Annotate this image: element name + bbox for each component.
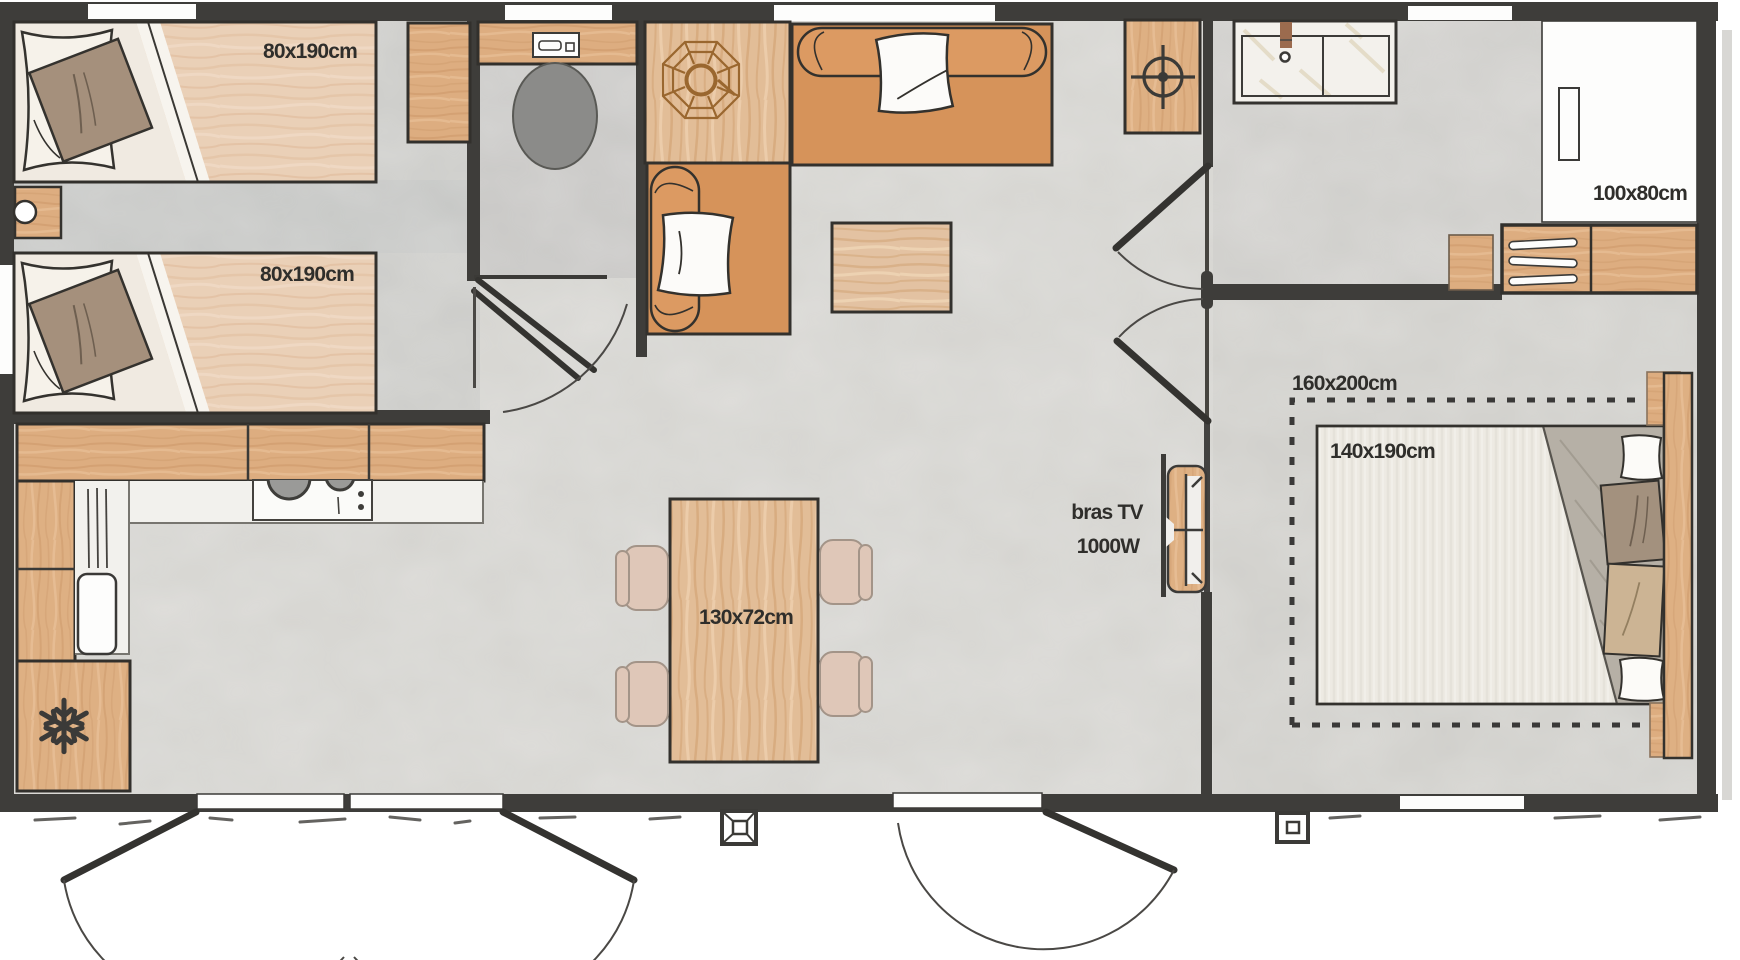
svg-text:80x190cm: 80x190cm [263,40,357,63]
svg-text:1000W: 1000W [1077,535,1141,558]
svg-text:bras TV: bras TV [1071,501,1143,524]
svg-text:80x190cm: 80x190cm [260,263,354,286]
svg-text:130x72cm: 130x72cm [699,606,793,629]
svg-text:140x190cm: 140x190cm [1330,440,1435,463]
svg-text:160x200cm: 160x200cm [1292,372,1397,395]
svg-text:100x80cm: 100x80cm [1593,182,1687,205]
